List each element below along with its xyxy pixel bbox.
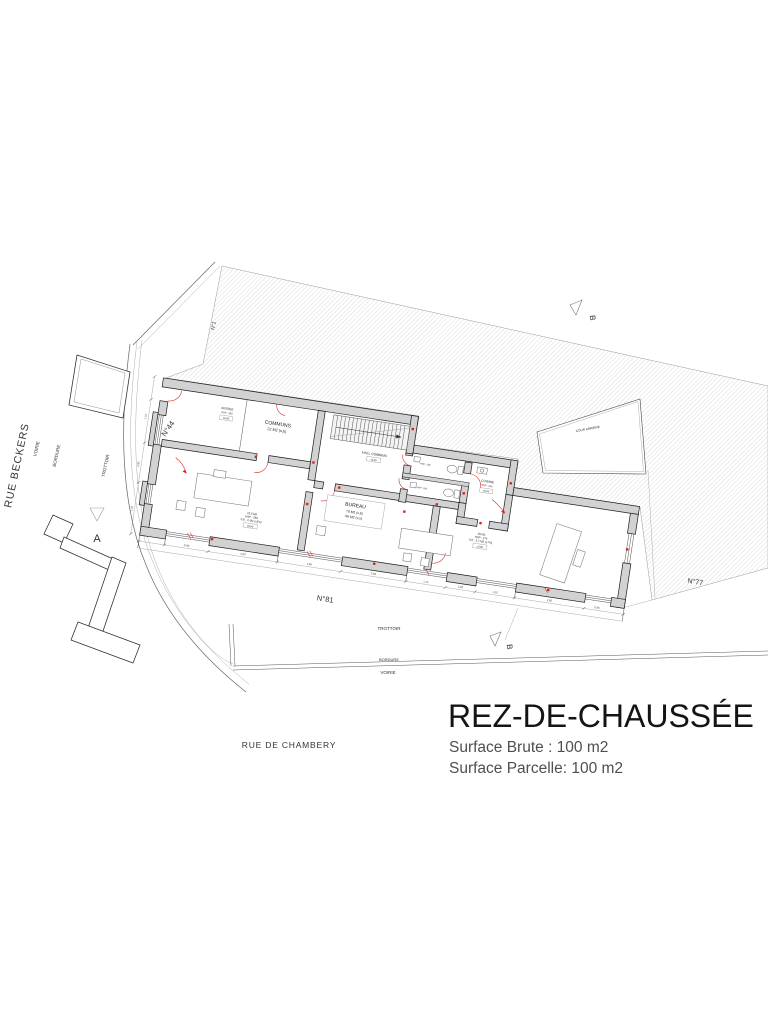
cuisine-hsp: HSP : 245 xyxy=(481,484,493,489)
street-label-bordure-left: BORDURE xyxy=(52,444,62,467)
dimension-label: 2,60 xyxy=(547,598,553,603)
dimension-label: 2,60 xyxy=(371,571,377,576)
street-label-trottoir-bottom: TROTTOIR xyxy=(378,626,402,631)
room-label-hall-commun: HALL COMMUN xyxy=(362,450,388,458)
section-letter-b-top: B xyxy=(588,315,597,321)
section-marker-b-top: B xyxy=(570,300,597,321)
surface-parcelle: Surface Parcelle: 100 m2 xyxy=(449,760,623,777)
wc2-hsp: HSP : 245 xyxy=(416,487,427,491)
right-room-level: ±0,00 xyxy=(476,545,483,549)
dimension-label: 1,25 xyxy=(129,505,134,511)
section-marker-b-bottom: B xyxy=(490,608,518,650)
street-label-rue-de-chambery: RUE DE CHAMBERY xyxy=(242,740,337,750)
left-room-level: ±0,00 xyxy=(247,525,254,529)
right-room-se: S.E : 2,7 M2 (17%) xyxy=(469,537,493,544)
hall-level: ±0,00 xyxy=(370,458,377,462)
dimension-label: 1,15 xyxy=(423,579,429,584)
dimension-label: 2,60 xyxy=(240,552,246,557)
dimension-label: 2,60 xyxy=(458,585,464,590)
floor-plan-page: COUR ARRIERE RUE BECKERS VOIRIE BORDURE … xyxy=(0,0,768,1024)
street-label-voirie-bottom: VOIRIE xyxy=(380,670,395,675)
street-label-trottoir-left: TROTTOIR xyxy=(101,453,111,477)
dimension-label: 1,10 xyxy=(143,413,148,419)
dimension-label: 1,98 xyxy=(306,562,312,567)
surface-brute: Surface Brute : 100 m2 xyxy=(449,739,608,756)
neighbour-building-sw xyxy=(44,515,140,663)
parcel-label-n44: N°44 xyxy=(159,419,176,438)
entree-hsp: HSP : 260 xyxy=(221,411,233,416)
street-label-voirie-left: VOIRIE xyxy=(33,441,41,457)
title-block: REZ-DE-CHAUSSÉE Surface Brute : 100 m2 S… xyxy=(448,698,754,777)
drawing-title: REZ-DE-CHAUSSÉE xyxy=(448,698,754,734)
dimension-label: 0,98 xyxy=(184,543,190,548)
section-marker-a: A xyxy=(90,508,104,545)
dimension-label: 1,10 xyxy=(492,590,498,595)
street-label-bordure-bottom: BORDURE xyxy=(379,657,399,662)
section-letter-a: A xyxy=(93,533,101,545)
parcel-label-n81: N°81 xyxy=(316,593,334,604)
floor-plan-drawing: COUR ARRIERE RUE BECKERS VOIRIE BORDURE … xyxy=(0,0,768,1024)
rue-de-chambery-street xyxy=(229,624,768,670)
wc1-hsp: HSP : 245 xyxy=(420,463,431,467)
street-label-rue-beckers: RUE BECKERS xyxy=(2,422,32,509)
section-letter-b-bottom: B xyxy=(505,644,514,650)
dimension-label: 0,90 xyxy=(594,605,600,610)
neighbour-building-nw xyxy=(69,355,130,418)
